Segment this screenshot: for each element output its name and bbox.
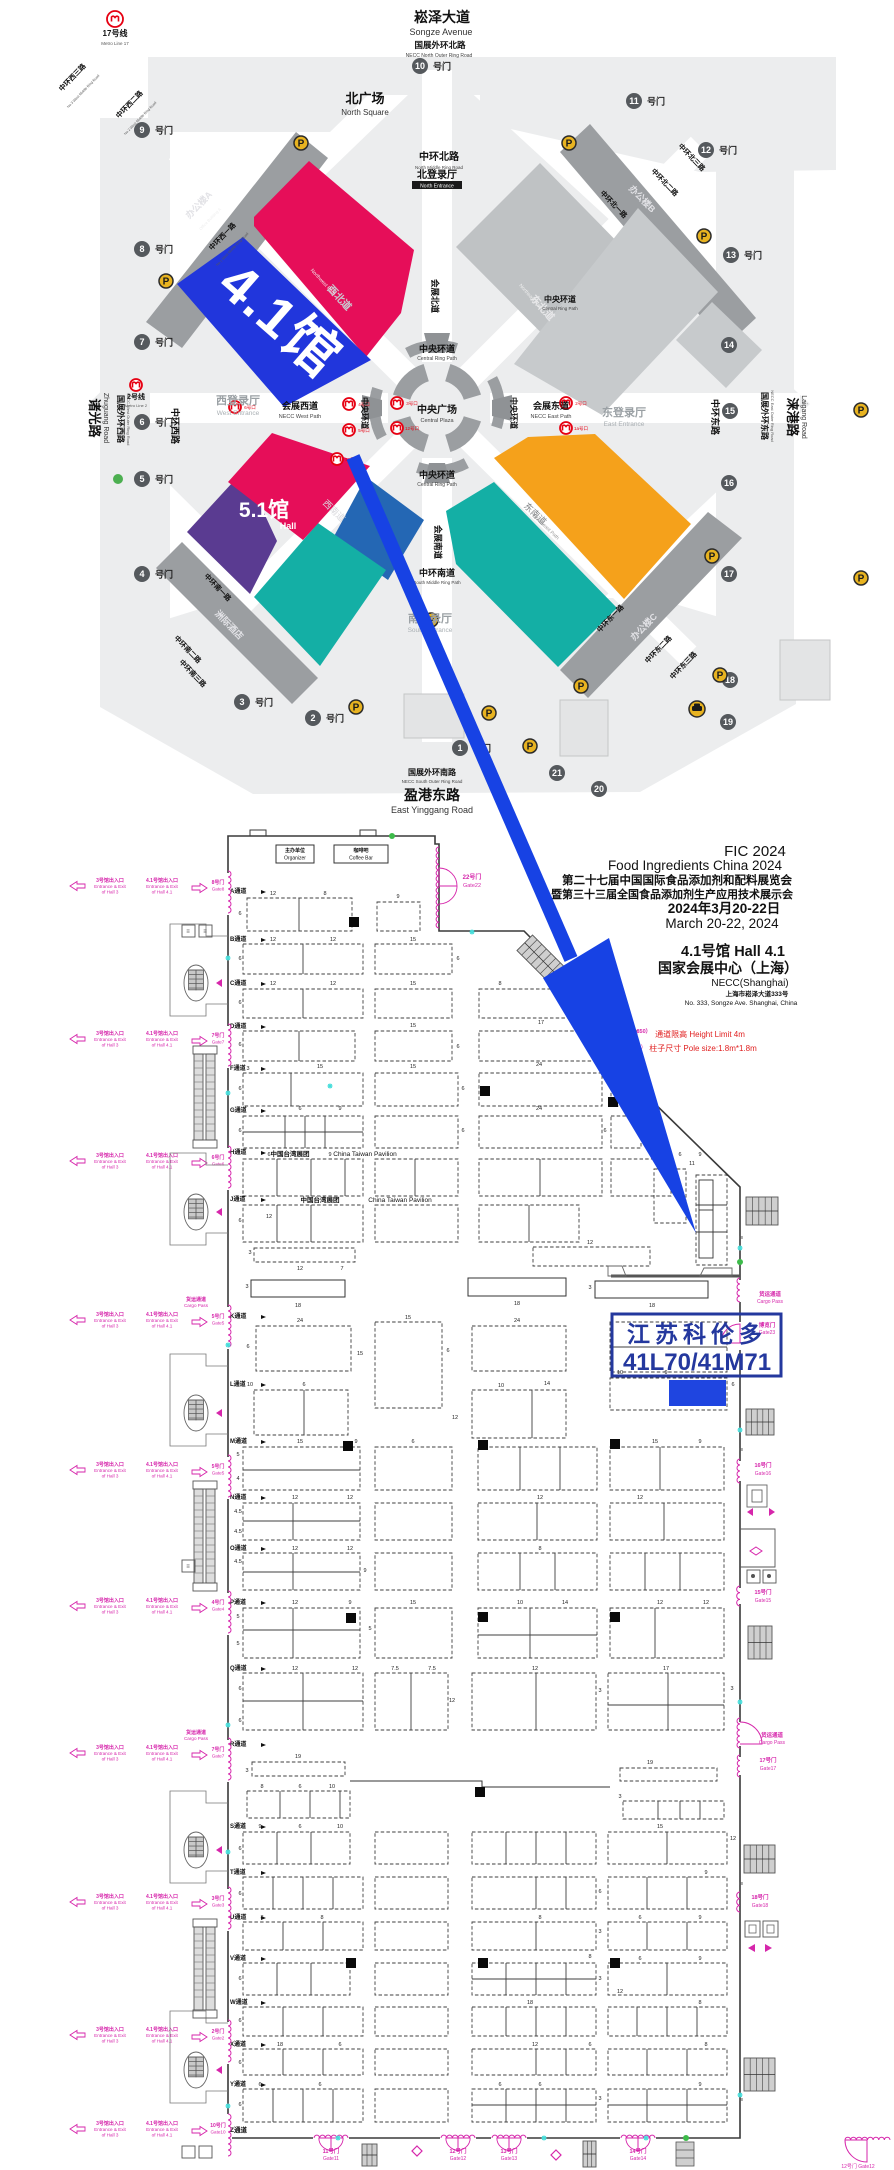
svg-text:9: 9	[348, 1600, 351, 1606]
svg-text:15: 15	[410, 981, 416, 987]
svg-text:Y通道: Y通道	[230, 2080, 246, 2088]
svg-text:号门: 号门	[744, 250, 762, 261]
svg-text:24: 24	[536, 1062, 542, 1068]
svg-text:≡: ≡	[186, 1564, 190, 1570]
svg-text:号门: 号门	[155, 244, 173, 255]
svg-text:6: 6	[603, 1128, 606, 1134]
svg-text:Central Ring Path: Central Ring Path	[542, 306, 578, 311]
svg-text:K通道: K通道	[230, 1312, 246, 1320]
svg-text:9: 9	[698, 1439, 701, 1445]
svg-text:9: 9	[354, 1439, 357, 1445]
svg-text:of Hall 3: of Hall 3	[102, 890, 119, 895]
svg-text:12: 12	[617, 1989, 623, 1995]
svg-text:≡: ≡	[739, 1447, 743, 1454]
svg-text:中央环道: 中央环道	[509, 397, 519, 429]
svg-text:18: 18	[277, 2042, 283, 2048]
svg-text:L通道: L通道	[230, 1380, 246, 1388]
svg-text:6: 6	[258, 2082, 261, 2088]
svg-text:18号门: 18号门	[751, 1893, 769, 1901]
svg-text:上海市崧泽大道333号: 上海市崧泽大道333号	[726, 989, 789, 998]
svg-text:6: 6	[538, 2082, 541, 2088]
svg-text:中国台湾展团: 中国台湾展团	[301, 1195, 341, 1204]
svg-text:Gate5: Gate5	[212, 1471, 225, 1476]
svg-text:Gate16: Gate16	[755, 1471, 772, 1477]
svg-text:国展外环东路: 国展外环东路	[760, 392, 770, 441]
svg-text:中国台湾展团: 中国台湾展团	[271, 1149, 311, 1158]
svg-text:of Hall 3: of Hall 3	[102, 1043, 119, 1048]
svg-text:Entrance & Exit: Entrance & Exit	[94, 1037, 126, 1042]
svg-text:第二十七届中国国际食品添加剂和配料展览会: 第二十七届中国国际食品添加剂和配料展览会	[562, 873, 792, 887]
svg-text:6: 6	[338, 2042, 341, 2048]
svg-text:of Hall 4.1: of Hall 4.1	[152, 1757, 173, 1762]
svg-text:12: 12	[330, 981, 336, 987]
svg-text:of Hall 4.1: of Hall 4.1	[152, 2133, 173, 2138]
svg-text:货运通道: 货运通道	[761, 1731, 784, 1739]
svg-text:Entrance & Exit: Entrance & Exit	[146, 1900, 178, 1905]
svg-text:12: 12	[532, 2042, 538, 2048]
svg-text:6: 6	[456, 1044, 459, 1050]
svg-text:R通道: R通道	[230, 1740, 246, 1748]
svg-text:17号线: 17号线	[103, 28, 128, 38]
svg-text:12: 12	[270, 981, 276, 987]
svg-text:6: 6	[461, 1086, 464, 1092]
svg-text:4: 4	[236, 1476, 239, 1482]
svg-text:2号门: 2号门	[212, 2028, 225, 2035]
svg-text:Central Ring Path: Central Ring Path	[417, 482, 457, 488]
svg-text:Central Ring Path: Central Ring Path	[417, 356, 457, 362]
svg-text:11: 11	[689, 1161, 695, 1167]
svg-text:12: 12	[292, 1495, 298, 1501]
svg-text:6: 6	[238, 2060, 241, 2066]
svg-text:China Taiwan Pavilion: China Taiwan Pavilion	[368, 1197, 432, 1204]
svg-text:会展南道: 会展南道	[433, 524, 443, 560]
svg-text:3: 3	[598, 1929, 601, 1935]
svg-text:of Hall 3: of Hall 3	[102, 1610, 119, 1615]
svg-text:of Hall 3: of Hall 3	[102, 1324, 119, 1329]
svg-text:Cargo Pass: Cargo Pass	[759, 1740, 786, 1746]
svg-text:3号馆出入口: 3号馆出入口	[96, 1152, 124, 1159]
svg-text:主办单位: 主办单位	[285, 847, 305, 854]
svg-text:3: 3	[245, 1284, 248, 1290]
svg-text:9: 9	[698, 1915, 701, 1921]
svg-text:South Middle Ring Path: South Middle Ring Path	[413, 580, 461, 585]
svg-text:12号门: 12号门	[449, 2147, 467, 2155]
svg-text:Entrance & Exit: Entrance & Exit	[146, 1604, 178, 1609]
svg-text:Entrance & Exit: Entrance & Exit	[94, 2033, 126, 2038]
svg-text:6: 6	[139, 417, 144, 427]
svg-text:P: P	[709, 552, 716, 563]
svg-text:5号门: 5号门	[212, 1313, 225, 1320]
svg-text:10: 10	[517, 1600, 523, 1606]
svg-text:4: 4	[139, 569, 144, 579]
svg-text:3: 3	[248, 1250, 251, 1256]
svg-text:F通道: F通道	[230, 1064, 246, 1072]
svg-text:15: 15	[657, 1824, 663, 1830]
svg-text:Entrance & Exit: Entrance & Exit	[146, 1468, 178, 1473]
svg-text:5: 5	[368, 1626, 371, 1632]
svg-text:Entrance & Exit: Entrance & Exit	[94, 1468, 126, 1473]
svg-text:6: 6	[238, 1000, 241, 1006]
svg-text:P: P	[298, 139, 305, 150]
svg-text:4.1号馆出入口: 4.1号馆出入口	[146, 1744, 178, 1751]
svg-text:19: 19	[295, 1754, 301, 1760]
svg-text:East Entrance: East Entrance	[604, 421, 645, 428]
svg-text:15: 15	[652, 1439, 658, 1445]
svg-text:15号门: 15号门	[754, 1588, 772, 1596]
svg-text:10: 10	[337, 1824, 343, 1830]
svg-text:Entrance & Exit: Entrance & Exit	[146, 1318, 178, 1323]
svg-text:8: 8	[260, 1784, 263, 1790]
svg-text:6: 6	[446, 1348, 449, 1354]
svg-text:of Hall 4.1: of Hall 4.1	[152, 1474, 173, 1479]
svg-text:3号馆出入口: 3号馆出入口	[96, 2120, 124, 2127]
svg-text:6: 6	[298, 1784, 301, 1790]
svg-text:Gate7: Gate7	[212, 1040, 225, 1045]
svg-text:10: 10	[329, 1784, 335, 1790]
svg-text:NECC West Path: NECC West Path	[279, 414, 321, 420]
svg-text:12: 12	[532, 1666, 538, 1672]
svg-text:of Hall 4.1: of Hall 4.1	[152, 1610, 173, 1615]
svg-text:Metro Line 17: Metro Line 17	[101, 41, 129, 46]
svg-text:8: 8	[320, 1915, 323, 1921]
svg-text:12: 12	[537, 1495, 543, 1501]
svg-text:C通道: C通道	[230, 979, 246, 987]
svg-text:5: 5	[139, 474, 144, 484]
svg-text:国家会展中心（上海）: 国家会展中心（上海）	[658, 960, 798, 976]
svg-text:北广场: 北广场	[345, 91, 384, 106]
svg-text:P: P	[163, 277, 170, 288]
svg-text:10号门: 10号门	[210, 2122, 226, 2129]
svg-text:中央广场: 中央广场	[417, 403, 457, 416]
svg-text:6: 6	[238, 1128, 241, 1134]
svg-text:3号馆出入口: 3号馆出入口	[96, 1461, 124, 1468]
svg-text:12: 12	[297, 1266, 303, 1272]
svg-text:Z通道: Z通道	[230, 2125, 247, 2134]
svg-text:18: 18	[527, 2000, 533, 2006]
svg-text:14: 14	[562, 1600, 568, 1606]
svg-text:Gate11: Gate11	[323, 2156, 339, 2162]
svg-text:Cargo Pass: Cargo Pass	[184, 1303, 209, 1308]
svg-text:G通道: G通道	[230, 1106, 247, 1114]
svg-text:17: 17	[538, 1020, 544, 1026]
svg-text:6: 6	[456, 956, 459, 962]
svg-text:9: 9	[704, 1870, 707, 1876]
svg-text:20: 20	[594, 784, 604, 794]
svg-text:10: 10	[415, 61, 425, 71]
svg-text:3: 3	[239, 697, 244, 707]
svg-text:West Entrance: West Entrance	[217, 410, 260, 417]
svg-text:会展北道: 会展北道	[430, 278, 440, 314]
svg-text:6: 6	[302, 1382, 305, 1388]
svg-text:8号门: 8号门	[212, 879, 225, 886]
svg-text:6: 6	[238, 1846, 241, 1852]
svg-text:North Square: North Square	[341, 108, 389, 117]
svg-text:9: 9	[698, 1152, 701, 1158]
svg-text:Gate15: Gate15	[755, 1598, 772, 1604]
svg-text:P通道: P通道	[230, 1598, 246, 1606]
svg-text:6: 6	[246, 1344, 249, 1350]
svg-text:Entrance & Exit: Entrance & Exit	[94, 1159, 126, 1164]
svg-text:22号门: 22号门	[463, 873, 482, 881]
svg-text:NECC East Outer Ring Road: NECC East Outer Ring Road	[770, 390, 775, 442]
svg-text:8: 8	[139, 244, 144, 254]
svg-text:Gate17: Gate17	[760, 1766, 777, 1772]
svg-text:3号馆出入口: 3号馆出入口	[96, 1893, 124, 1900]
svg-text:号门: 号门	[647, 96, 665, 107]
svg-text:会展西道: 会展西道	[282, 400, 318, 411]
svg-text:号门: 号门	[155, 337, 173, 348]
svg-text:4.1号馆出入口: 4.1号馆出入口	[146, 1597, 178, 1604]
svg-text:Coffee Bar: Coffee Bar	[349, 856, 373, 862]
svg-text:4.5: 4.5	[234, 1559, 242, 1565]
svg-text:14: 14	[724, 340, 734, 350]
svg-text:3: 3	[246, 1066, 249, 1072]
svg-text:19: 19	[647, 1760, 653, 1766]
svg-text:Gate8: Gate8	[212, 887, 225, 892]
svg-text:P: P	[717, 671, 724, 682]
svg-text:of Hall 3: of Hall 3	[102, 1165, 119, 1170]
svg-text:9: 9	[363, 1568, 366, 1574]
svg-text:NECC(Shanghai): NECC(Shanghai)	[711, 978, 788, 989]
svg-text:17号门: 17号门	[759, 1756, 777, 1764]
svg-text:N通道: N通道	[230, 1493, 246, 1501]
svg-text:17: 17	[663, 1666, 669, 1672]
svg-text:6: 6	[678, 1152, 681, 1158]
svg-text:of Hall 3: of Hall 3	[102, 1474, 119, 1479]
svg-text:Entrance & Exit: Entrance & Exit	[94, 1751, 126, 1756]
svg-text:6: 6	[298, 1824, 301, 1830]
svg-text:6: 6	[238, 1976, 241, 1982]
svg-text:Q通道: Q通道	[230, 1664, 247, 1672]
svg-text:3: 3	[598, 1688, 601, 1694]
svg-text:21: 21	[552, 768, 562, 778]
svg-text:6: 6	[461, 1128, 464, 1134]
svg-text:中央环道: 中央环道	[419, 343, 455, 354]
svg-text:15: 15	[410, 937, 416, 943]
svg-text:Gate18: Gate18	[752, 1903, 769, 1909]
svg-text:货运通道: 货运通道	[186, 1729, 206, 1736]
svg-text:4.1号馆出入口: 4.1号馆出入口	[146, 1461, 178, 1468]
svg-text:5: 5	[236, 1614, 239, 1620]
svg-text:P: P	[566, 139, 573, 150]
svg-text:10: 10	[247, 1382, 253, 1388]
svg-text:V通道: V通道	[230, 1954, 246, 1962]
svg-text:会展东道: 会展东道	[533, 400, 569, 411]
svg-text:NECC West Outer Ring Road: NECC West Outer Ring Road	[126, 393, 131, 446]
svg-text:M通道: M通道	[230, 1437, 247, 1445]
svg-text:8: 8	[588, 1954, 591, 1960]
svg-text:4.1号馆出入口: 4.1号馆出入口	[146, 1893, 178, 1900]
svg-text:NECC North Outer Ring Road: NECC North Outer Ring Road	[406, 53, 473, 59]
svg-text:P: P	[527, 742, 534, 753]
svg-text:8: 8	[538, 1546, 541, 1552]
svg-text:7.5: 7.5	[428, 1666, 436, 1672]
svg-text:Hall: Hall	[280, 521, 297, 531]
svg-text:9: 9	[258, 1824, 261, 1830]
svg-text:12: 12	[657, 1600, 663, 1606]
svg-text:暨第三十三届全国食品添加剂生产应用技术展示会: 暨第三十三届全国食品添加剂生产应用技术展示会	[551, 887, 794, 901]
svg-text:货运通道: 货运通道	[759, 1290, 782, 1298]
svg-text:15: 15	[297, 1439, 303, 1445]
svg-text:12: 12	[347, 1495, 353, 1501]
svg-text:P: P	[486, 709, 493, 720]
svg-text:5.1馆: 5.1馆	[239, 498, 289, 522]
svg-text:≡: ≡	[739, 1235, 743, 1242]
svg-text:12: 12	[292, 1666, 298, 1672]
svg-text:T通道: T通道	[230, 1868, 246, 1876]
svg-text:6: 6	[598, 1889, 601, 1895]
svg-text:6: 6	[238, 1042, 241, 1048]
svg-text:6: 6	[298, 1106, 301, 1112]
svg-text:号门: 号门	[255, 697, 273, 708]
svg-text:3: 3	[730, 1686, 733, 1692]
svg-text:12: 12	[703, 1600, 709, 1606]
svg-text:12: 12	[730, 1836, 736, 1842]
svg-text:北登录厅: 北登录厅	[417, 168, 457, 181]
svg-text:24: 24	[536, 1106, 542, 1112]
svg-text:41L70/41M71: 41L70/41M71	[623, 1349, 771, 1376]
svg-text:Gate14: Gate14	[630, 2156, 647, 2162]
svg-text:4.5: 4.5	[234, 1529, 242, 1535]
svg-text:Songze Avenue: Songze Avenue	[410, 27, 473, 37]
svg-text:12: 12	[270, 891, 276, 897]
svg-text:12: 12	[292, 1546, 298, 1552]
svg-text:Cargo Pass: Cargo Pass	[757, 1299, 784, 1305]
svg-text:中央环道: 中央环道	[544, 294, 576, 304]
svg-text:Entrance & Exit: Entrance & Exit	[146, 2127, 178, 2132]
svg-text:No. 333, Songze Ave. Shanghai,: No. 333, Songze Ave. Shanghai, China	[685, 1000, 798, 1007]
svg-text:中环东路: 中环东路	[710, 399, 721, 436]
svg-text:号门: 号门	[155, 125, 173, 136]
svg-text:H通道: H通道	[230, 1148, 246, 1156]
svg-text:盈港东路: 盈港东路	[403, 787, 461, 803]
svg-text:of Hall 4.1: of Hall 4.1	[152, 1043, 173, 1048]
svg-text:S通道: S通道	[230, 1822, 246, 1830]
svg-text:14号门: 14号门	[629, 2147, 647, 2155]
svg-text:3号馆出入口: 3号馆出入口	[96, 877, 124, 884]
svg-text:12: 12	[352, 1666, 358, 1672]
svg-text:P: P	[701, 232, 708, 243]
svg-text:4.1号馆出入口: 4.1号馆出入口	[146, 1311, 178, 1318]
svg-text:号门: 号门	[155, 474, 173, 485]
svg-text:of Hall 4.1: of Hall 4.1	[152, 1324, 173, 1329]
svg-text:6: 6	[638, 1956, 641, 1962]
svg-text:Entrance & Exit: Entrance & Exit	[146, 1159, 178, 1164]
svg-text:12: 12	[452, 1415, 458, 1421]
svg-text:7.5: 7.5	[391, 1666, 399, 1672]
svg-text:of Hall 4.1: of Hall 4.1	[152, 1906, 173, 1911]
svg-text:6: 6	[238, 1218, 241, 1224]
svg-text:≡: ≡	[203, 929, 207, 935]
svg-text:Cargo Pass: Cargo Pass	[184, 1736, 209, 1741]
svg-text:3号馆出入口: 3号馆出入口	[96, 1030, 124, 1037]
svg-text:≡: ≡	[739, 2097, 743, 2104]
svg-text:6: 6	[238, 1686, 241, 1692]
svg-text:3: 3	[245, 1768, 248, 1774]
svg-text:Entrance & Exit: Entrance & Exit	[94, 2127, 126, 2132]
svg-text:4.1号馆出入口: 4.1号馆出入口	[146, 2120, 178, 2127]
svg-text:Gate10: Gate10	[210, 2130, 226, 2135]
svg-text:J通道: J通道	[230, 1195, 245, 1203]
svg-text:Food Ingredients China 2024: Food Ingredients China 2024	[608, 858, 783, 873]
svg-text:6: 6	[238, 1086, 241, 1092]
svg-text:国展外环北路: 国展外环北路	[414, 40, 466, 50]
svg-text:12: 12	[449, 1698, 455, 1704]
svg-text:柱子尺寸 Pole size:1.8m*1.8m: 柱子尺寸 Pole size:1.8m*1.8m	[649, 1043, 757, 1053]
svg-text:X通道: X通道	[230, 2040, 246, 2048]
svg-text:10: 10	[498, 1383, 504, 1389]
svg-text:Gate7: Gate7	[212, 1754, 225, 1759]
svg-text:18: 18	[295, 1303, 301, 1309]
svg-text:中央环道: 中央环道	[360, 397, 370, 429]
svg-text:号门: 号门	[155, 569, 173, 580]
svg-text:East Yinggang Road: East Yinggang Road	[391, 805, 473, 815]
svg-text:24: 24	[297, 1318, 303, 1324]
svg-text:NECC South Outer Ring Road: NECC South Outer Ring Road	[402, 779, 463, 784]
svg-text:13号门: 13号门	[500, 2147, 518, 2155]
svg-text:17: 17	[724, 569, 734, 579]
svg-text:of Hall 3: of Hall 3	[102, 1906, 119, 1911]
svg-text:of Hall 3: of Hall 3	[102, 2133, 119, 2138]
svg-text:7: 7	[139, 337, 144, 347]
svg-text:Entrance & Exit: Entrance & Exit	[146, 1751, 178, 1756]
svg-text:中环南道: 中环南道	[419, 567, 455, 578]
svg-text:6: 6	[588, 2042, 591, 2048]
svg-text:15: 15	[357, 1351, 363, 1357]
svg-text:Gate5: Gate5	[212, 1321, 225, 1326]
svg-text:Organizer: Organizer	[284, 856, 306, 862]
svg-text:11: 11	[629, 96, 639, 106]
svg-text:Entrance & Exit: Entrance & Exit	[94, 1900, 126, 1905]
svg-text:6: 6	[498, 2082, 501, 2088]
svg-text:4.1号馆 Hall 4.1: 4.1号馆 Hall 4.1	[681, 942, 785, 960]
svg-text:18: 18	[514, 1301, 520, 1307]
svg-text:8: 8	[704, 2042, 707, 2048]
svg-text:12: 12	[292, 1600, 298, 1606]
svg-text:9: 9	[396, 894, 399, 900]
svg-text:国展外环南路: 国展外环南路	[408, 767, 457, 777]
svg-text:≡: ≡	[186, 929, 190, 935]
svg-text:5号门: 5号门	[212, 1463, 225, 1470]
svg-text:March 20-22, 2024: March 20-22, 2024	[665, 916, 779, 931]
svg-text:6: 6	[238, 1718, 241, 1724]
svg-text:江苏科伦多: 江苏科伦多	[627, 1321, 767, 1347]
svg-text:19: 19	[723, 717, 733, 727]
svg-text:8: 8	[323, 891, 326, 897]
svg-text:11号门: 11号门	[323, 2147, 340, 2155]
svg-text:24: 24	[514, 1318, 520, 1324]
svg-text:NECC East Path: NECC East Path	[531, 414, 572, 420]
svg-text:2: 2	[310, 713, 315, 723]
svg-text:1: 1	[457, 743, 462, 753]
svg-text:O通道: O通道	[230, 1544, 247, 1552]
svg-text:W通道: W通道	[230, 1998, 248, 2006]
svg-text:8: 8	[260, 1915, 263, 1921]
svg-text:4.5: 4.5	[234, 1509, 242, 1515]
svg-text:P: P	[858, 574, 865, 585]
svg-text:4.1号馆出入口: 4.1号馆出入口	[146, 877, 178, 884]
svg-text:Entrance & Exit: Entrance & Exit	[94, 884, 126, 889]
svg-text:6: 6	[411, 1439, 414, 1445]
svg-text:P: P	[578, 682, 585, 693]
svg-text:6: 6	[238, 2102, 241, 2108]
svg-text:4.1号馆出入口: 4.1号馆出入口	[146, 1030, 178, 1037]
svg-text:P: P	[353, 703, 360, 714]
svg-text:Entrance & Exit: Entrance & Exit	[146, 2033, 178, 2038]
svg-text:咖啡吧: 咖啡吧	[353, 847, 368, 854]
svg-text:Gate3: Gate3	[212, 1903, 225, 1908]
svg-text:15: 15	[725, 406, 735, 416]
